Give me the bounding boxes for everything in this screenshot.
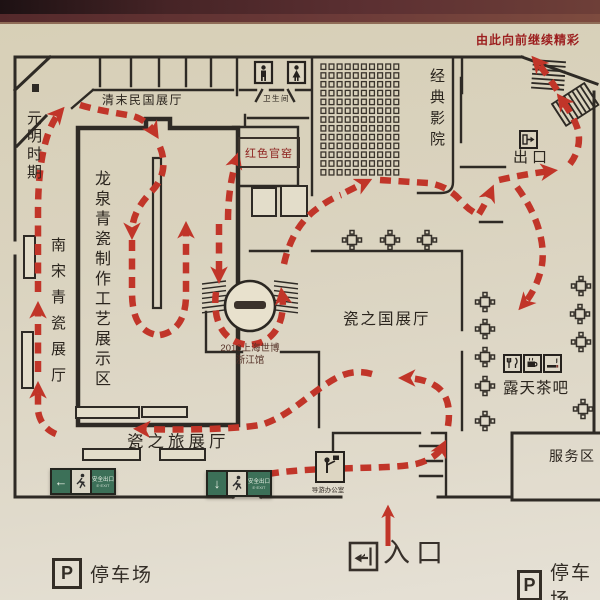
table-icons (343, 231, 593, 431)
dining-icon (504, 355, 521, 372)
parking-p-icon: P (52, 558, 82, 589)
red-kiln-text: 红色官窑 (245, 145, 293, 161)
cafe-icon (524, 355, 541, 372)
safety-exit-cn: 安全出口 (248, 477, 270, 485)
guide-office-icon (316, 452, 344, 482)
room-label-exit: 出口 (513, 150, 551, 165)
room-label-restroom: 卫生间 (263, 95, 290, 103)
room-label-yuan-ming: 元明时期 (26, 110, 41, 182)
parking-label-right: 停车场 (550, 558, 600, 600)
parking-sign-left: P 停车场 (52, 558, 153, 589)
safety-exit-sign-right: ↓ 安全出口 E·EXIT (206, 470, 272, 497)
expo-exhibit-icon (202, 281, 298, 331)
room-label-porcelain-country: 瓷之国展厅 (343, 312, 431, 328)
smoking-icon (544, 355, 561, 372)
safety-exit-text: 安全出口 E·EXIT (248, 472, 270, 495)
exit-door-icon (520, 131, 537, 148)
running-person-icon (72, 470, 90, 493)
room-label-qing-republic: 清末民国展厅 (102, 94, 183, 106)
safety-exit-en: E·EXIT (253, 485, 266, 490)
stairs-upper-icon (531, 60, 566, 90)
room-label-service-area: 服务区 (549, 449, 596, 463)
wall-pillar (32, 84, 39, 92)
room-label-tea-bar: 露天茶吧 (503, 381, 569, 397)
expo-label-line2: 浙江馆 (208, 356, 292, 366)
room-label-cinema: 经典影院 (429, 68, 444, 152)
room-label-red-kiln: 红色官窑 (238, 137, 300, 168)
room-label-porcelain-journey: 瓷之旅展厅 (127, 434, 230, 451)
parking-p-icon: P (517, 570, 542, 600)
exit-arrow-down-icon: ↓ (208, 472, 226, 495)
expo-label-line1: 2010上海世博 (208, 344, 292, 354)
parking-sign-right: P 停车场 (517, 558, 600, 600)
restroom-male-icon (255, 62, 272, 83)
safety-exit-cn: 安全出口 (92, 475, 114, 483)
entrance-door-icon (350, 543, 377, 570)
parking-label-left: 停车场 (90, 560, 153, 587)
floorplan-svg (0, 0, 600, 600)
exit-arrow-left-icon: ← (52, 470, 70, 493)
forward-banner-text: 由此向前继续精彩 (476, 34, 580, 46)
workshop-display-wall (153, 158, 161, 308)
restroom-female-icon (288, 62, 305, 83)
room-label-longquan-workshop: 龙泉青瓷制作工艺展示区 (92, 170, 108, 390)
safety-exit-text: 安全出口 E·EXIT (92, 470, 114, 493)
museum-tour-map-photo: 由此向前继续精彩 清末民国展厅 卫生间 元明时期 龙泉青瓷制作工艺展示区 南宋青… (0, 0, 600, 600)
safety-exit-sign-left: ← 安全出口 E·EXIT (50, 468, 116, 495)
room-label-southern-song: 南宋青瓷展厅 (50, 237, 65, 393)
cinema-seats (321, 64, 399, 175)
safety-exit-en: E·EXIT (97, 483, 110, 488)
running-person-icon (228, 472, 246, 495)
guide-office-label: 导游办公室 (303, 484, 353, 494)
entrance-label: 入口 (383, 540, 449, 567)
